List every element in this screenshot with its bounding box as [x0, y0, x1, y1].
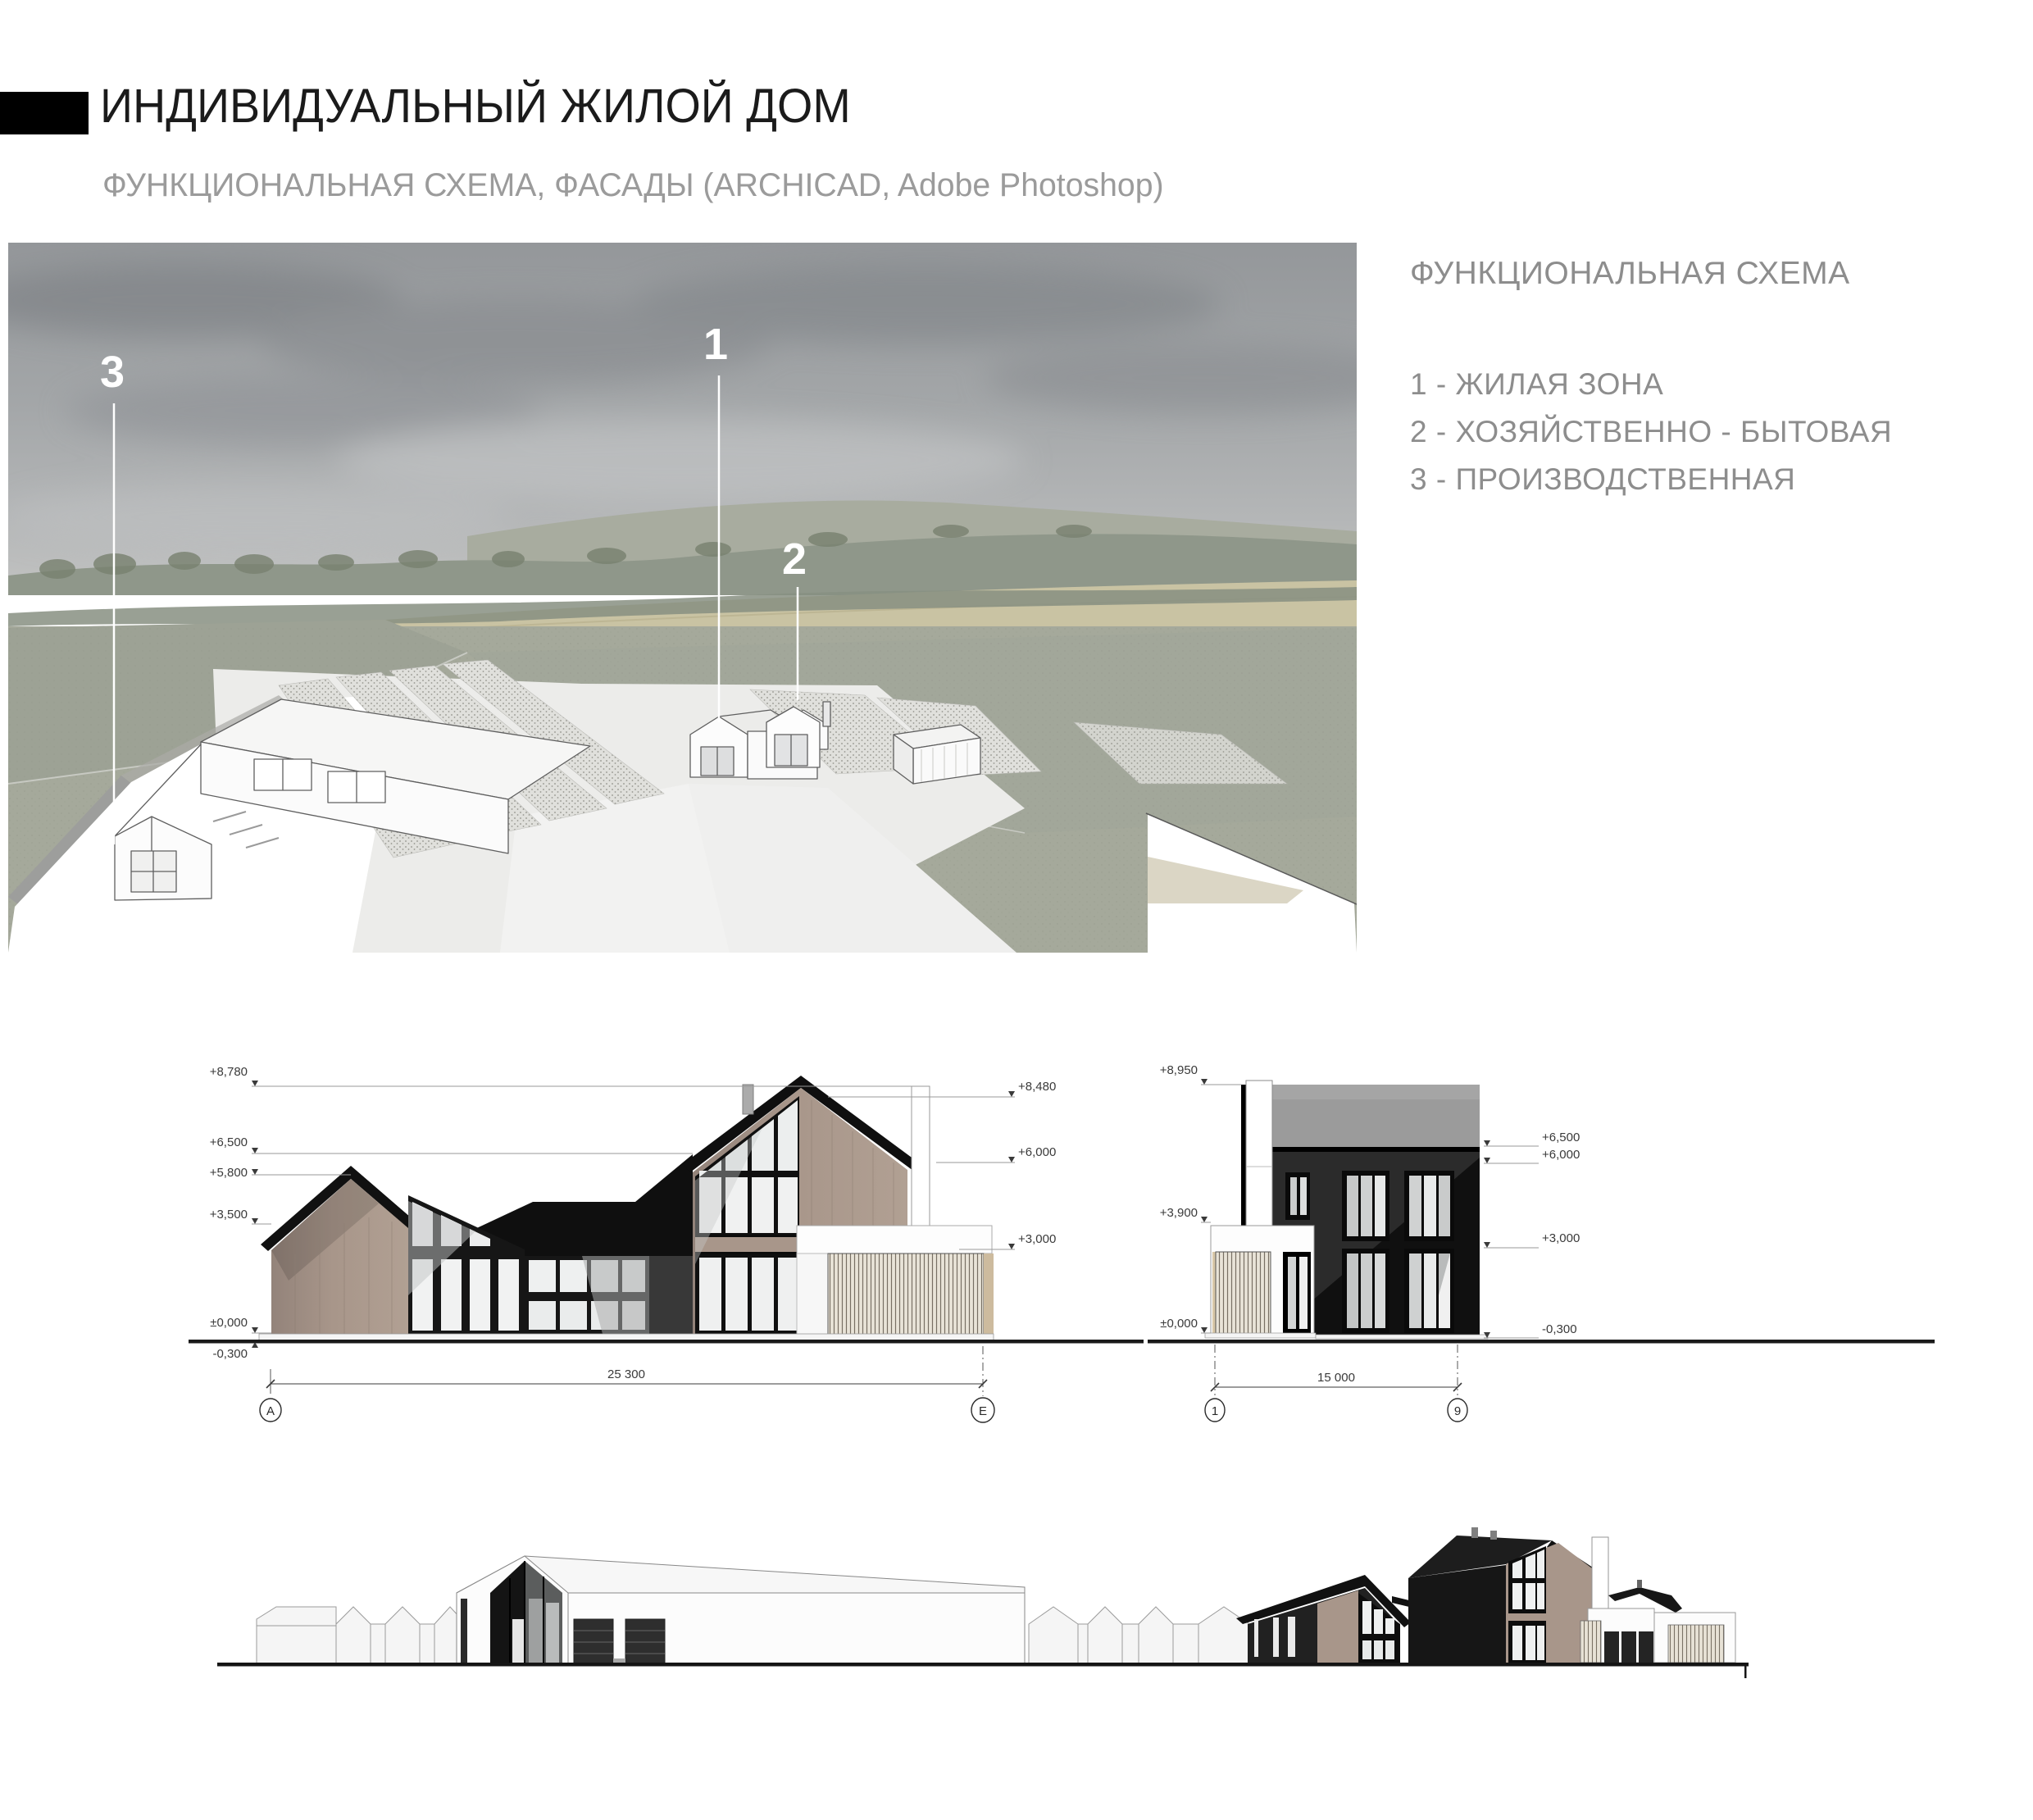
zone-label-household: 2 [782, 535, 807, 584]
site-render: 1 2 3 [8, 243, 1357, 953]
facade-b-dimension: 15 000 1 9 [1205, 1345, 1467, 1422]
level-label: +3,500 [210, 1208, 248, 1222]
dimension-label: 25 300 [607, 1367, 645, 1381]
level-label: +6,000 [1542, 1148, 1580, 1162]
level-label: ±0,000 [1160, 1317, 1198, 1331]
level-label: +6,000 [1018, 1145, 1056, 1159]
legend-items: 1 - ЖИЛАЯ ЗОНА 2 - ХОЗЯЙСТВЕННО - БЫТОВА… [1410, 361, 2033, 503]
facade-b-levels-right: +6,500 +6,000 +3,000 -0,300 [1484, 1131, 1580, 1338]
zone-label-production: 3 [100, 348, 125, 397]
white-chimney [912, 1086, 930, 1227]
site-elevation-strip [139, 1521, 1779, 1697]
legend-title: ФУНКЦИОНАЛЬНАЯ СХЕМА [1410, 256, 2033, 292]
axis-marker-9: 9 [1454, 1404, 1461, 1418]
facade-a-drawing: +8,780 +6,500 +5,800 +3,500 ±0,000 -0,30… [189, 1049, 1148, 1439]
zone-label-living: 1 [703, 320, 728, 369]
axis-marker-1: 1 [1212, 1404, 1218, 1418]
portfolio-sheet: ИНДИВИДУАЛЬНЫЙ ЖИЛОЙ ДОМ ФУНКЦИОНАЛЬНАЯ … [0, 0, 2033, 1820]
level-label: +8,780 [210, 1065, 248, 1079]
title-marker-bar [0, 92, 89, 134]
slat-screen [1216, 1252, 1271, 1334]
axis-marker-e: Е [979, 1404, 987, 1418]
legend-item-production: 3 - ПРОИЗВОДСТВЕННАЯ [1410, 456, 2033, 503]
legend-item-living: 1 - ЖИЛАЯ ЗОНА [1410, 361, 2033, 408]
strip-chimney [1592, 1537, 1608, 1609]
level-label: +3,000 [1018, 1232, 1056, 1246]
level-label: -0,300 [212, 1347, 248, 1361]
functional-scheme-legend: ФУНКЦИОНАЛЬНАЯ СХЕМА 1 - ЖИЛАЯ ЗОНА 2 - … [1410, 256, 2033, 503]
house-cluster [1236, 1527, 1735, 1663]
level-label: -0,300 [1542, 1322, 1577, 1336]
axis-marker-a: А [266, 1404, 275, 1418]
greenhouses-left [257, 1607, 459, 1666]
level-label: ±0,000 [210, 1316, 248, 1330]
legend-item-household: 2 - ХОЗЯЙСТВЕННО - БЫТОВАЯ [1410, 408, 2033, 456]
greenhouses-right [1029, 1607, 1249, 1666]
production-building [457, 1556, 1025, 1666]
chimney [1246, 1081, 1272, 1226]
ground-line [189, 1340, 1144, 1344]
level-label: +3,900 [1160, 1206, 1198, 1220]
level-label: +8,480 [1018, 1080, 1056, 1094]
gray-chimney [743, 1085, 753, 1114]
page-subtitle: ФУНКЦИОНАЛЬНАЯ СХЕМА, ФАСАДЫ (ARCHICAD, … [102, 167, 1164, 204]
level-label: +5,800 [210, 1166, 248, 1180]
level-label: +3,000 [1542, 1231, 1580, 1245]
level-label: +8,950 [1160, 1063, 1198, 1077]
dimension-label: 15 000 [1317, 1371, 1355, 1385]
facade-b-drawing: +8,950 +3,900 ±0,000 +6,500 +6,000 +3,00… [1144, 1049, 1955, 1439]
facade-a-dimension: 25 300 А Е [260, 1346, 994, 1422]
level-label: +6,500 [1542, 1131, 1580, 1144]
ground-line [1148, 1340, 1935, 1344]
strip-ground-line [217, 1663, 1749, 1667]
garage-slat-screen [828, 1254, 984, 1335]
page-title: ИНДИВИДУАЛЬНЫЙ ЖИЛОЙ ДОМ [100, 79, 851, 134]
strip-slat-screen [1668, 1625, 1724, 1663]
level-label: +6,500 [210, 1135, 248, 1149]
